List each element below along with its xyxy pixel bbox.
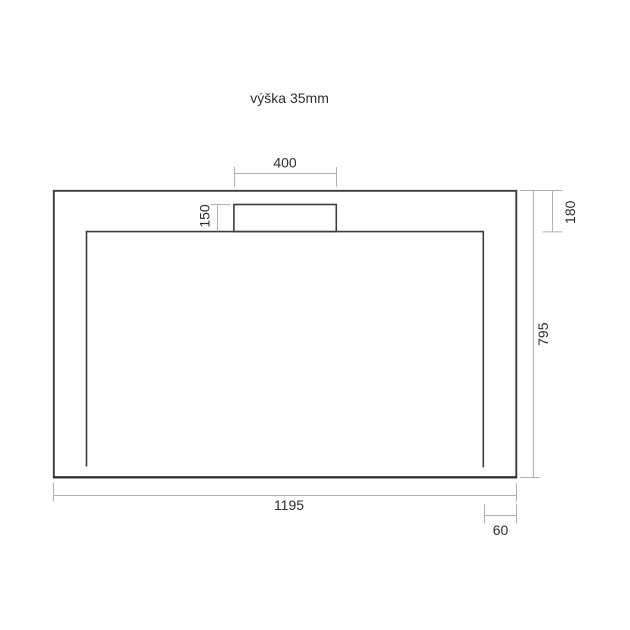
- svg-text:60: 60: [493, 522, 509, 538]
- svg-text:795: 795: [535, 322, 551, 346]
- svg-text:výška 35mm: výška 35mm: [250, 90, 329, 106]
- svg-text:400: 400: [273, 154, 297, 170]
- svg-text:1195: 1195: [274, 497, 304, 513]
- svg-text:180: 180: [562, 200, 578, 224]
- svg-text:150: 150: [196, 204, 212, 228]
